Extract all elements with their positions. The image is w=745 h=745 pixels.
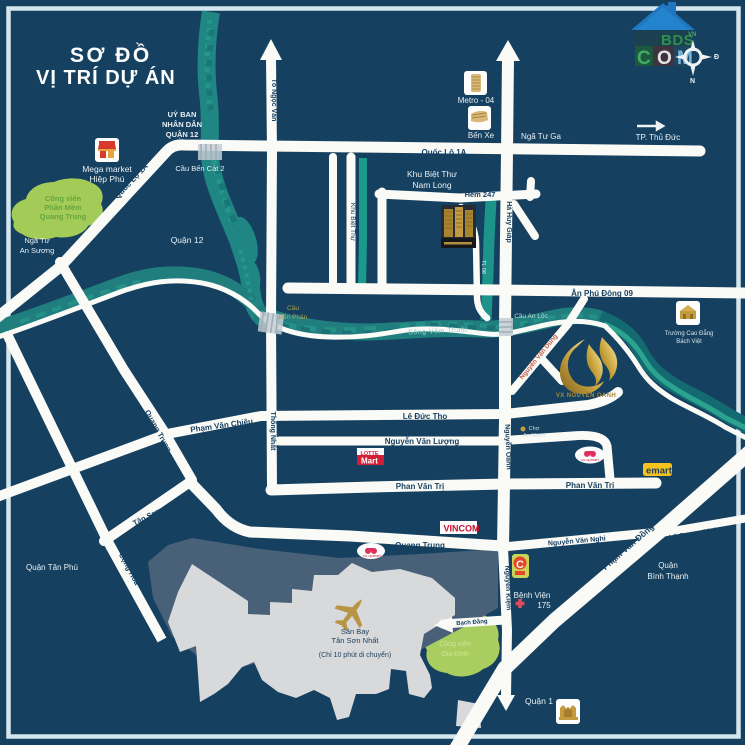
svg-text:Mega market: Mega market [82,164,132,174]
svg-text:Thống Nhất: Thống Nhất [269,412,277,452]
svg-text:Ngã Tư: Ngã Tư [24,236,49,245]
svg-text:Bình Thạnh: Bình Thạnh [647,572,688,581]
svg-text:Hà Huy Giáp: Hà Huy Giáp [505,201,512,243]
svg-text:Cầu Bến Cát 2: Cầu Bến Cát 2 [175,164,224,173]
svg-text:Mart: Mart [361,457,378,466]
svg-text:Bách Việt: Bách Việt [676,339,702,345]
svg-text:Gia Định: Gia Định [441,651,468,658]
svg-text:Phan Văn Trị: Phan Văn Trị [566,481,614,490]
svg-text:QUẬN 12: QUẬN 12 [166,130,199,139]
svg-text:Đ: Đ [714,54,719,61]
svg-text:Cầu An Lộc: Cầu An Lộc [514,311,548,320]
svg-text:Metro - 04: Metro - 04 [458,96,495,105]
svg-text:An Nhơn: An Nhơn [523,433,545,439]
svg-text:C: C [516,559,524,571]
svg-text:Quang Trung: Quang Trung [395,541,445,550]
svg-text:(Chỉ 10 phút di chuyển): (Chỉ 10 phút di chuyển) [319,651,391,659]
svg-text:Cầu: Cầu [287,303,299,312]
svg-text:Tô Ngọc Vân: Tô Ngọc Vân [270,79,277,122]
svg-text:Khu Biệt Thự: Khu Biệt Thự [349,203,356,242]
svg-text:VINCOM: VINCOM [444,524,480,534]
svg-text:VỊ TRÍ DỰ ÁN: VỊ TRÍ DỰ ÁN [36,66,176,89]
svg-text:175: 175 [537,601,551,610]
svg-text:C: C [637,48,651,69]
svg-text:Khu Biệt Thư: Khu Biệt Thư [407,169,457,179]
svg-text:O: O [657,48,672,69]
svg-text:Quận Tân Phú: Quận Tân Phú [26,563,78,572]
svg-text:TP. Thủ Đức: TP. Thủ Đức [636,133,681,142]
svg-text:VX NGUYỄN OANH: VX NGUYỄN OANH [556,392,616,399]
svg-text:Lê Đức Thọ: Lê Đức Thọ [403,412,448,421]
svg-text:TL 08: TL 08 [480,260,486,274]
svg-text:Bến Xe: Bến Xe [468,131,495,140]
svg-text:Ngã Tư Ga: Ngã Tư Ga [521,132,561,141]
svg-text:UỶ BAN: UỶ BAN [168,110,197,119]
svg-text:VN: VN [688,32,696,38]
svg-text:Quang Trung: Quang Trung [40,212,87,221]
svg-text:Sân Bay: Sân Bay [341,627,370,636]
svg-text:Công viên: Công viên [45,194,82,203]
svg-text:Quận 12: Quận 12 [171,235,204,245]
svg-text:Nam Long: Nam Long [412,180,451,190]
svg-text:Quận 1: Quận 1 [525,696,553,706]
svg-text:NHÂN DÂN: NHÂN DÂN [162,120,202,129]
svg-text:SƠ ĐỒ: SƠ ĐỒ [70,43,152,67]
svg-text:Hiệp Phú: Hiệp Phú [90,174,125,184]
svg-text:Chợ: Chợ [529,426,540,432]
svg-text:Trường Cao Đẳng: Trường Cao Đẳng [665,330,714,337]
svg-text:Quốc Lộ 1A: Quốc Lộ 1A [422,148,467,157]
svg-text:Bệnh Viện: Bệnh Viện [514,591,551,600]
svg-text:Phan Văn Trị: Phan Văn Trị [396,482,444,491]
svg-text:Nguyễn Văn Lượng: Nguyễn Văn Lượng [385,437,460,446]
svg-text:Quận: Quận [658,561,678,570]
svg-text:An Sương: An Sương [20,246,55,255]
svg-text:co.opmart: co.opmart [581,457,600,462]
svg-text:Phần Mềm: Phần Mềm [44,203,82,212]
svg-text:Ân Phú Đông 09: Ân Phú Đông 09 [571,289,633,298]
svg-text:N: N [690,78,695,85]
svg-text:Tân Sơn Nhất: Tân Sơn Nhất [331,636,379,645]
svg-text:co.opmart: co.opmart [363,553,382,558]
svg-text:Hẻm 247: Hẻm 247 [465,190,496,199]
svg-text:emart: emart [646,466,673,477]
svg-text:Công viên: Công viên [439,641,471,648]
svg-text:Bến Phân: Bến Phân [279,312,308,321]
